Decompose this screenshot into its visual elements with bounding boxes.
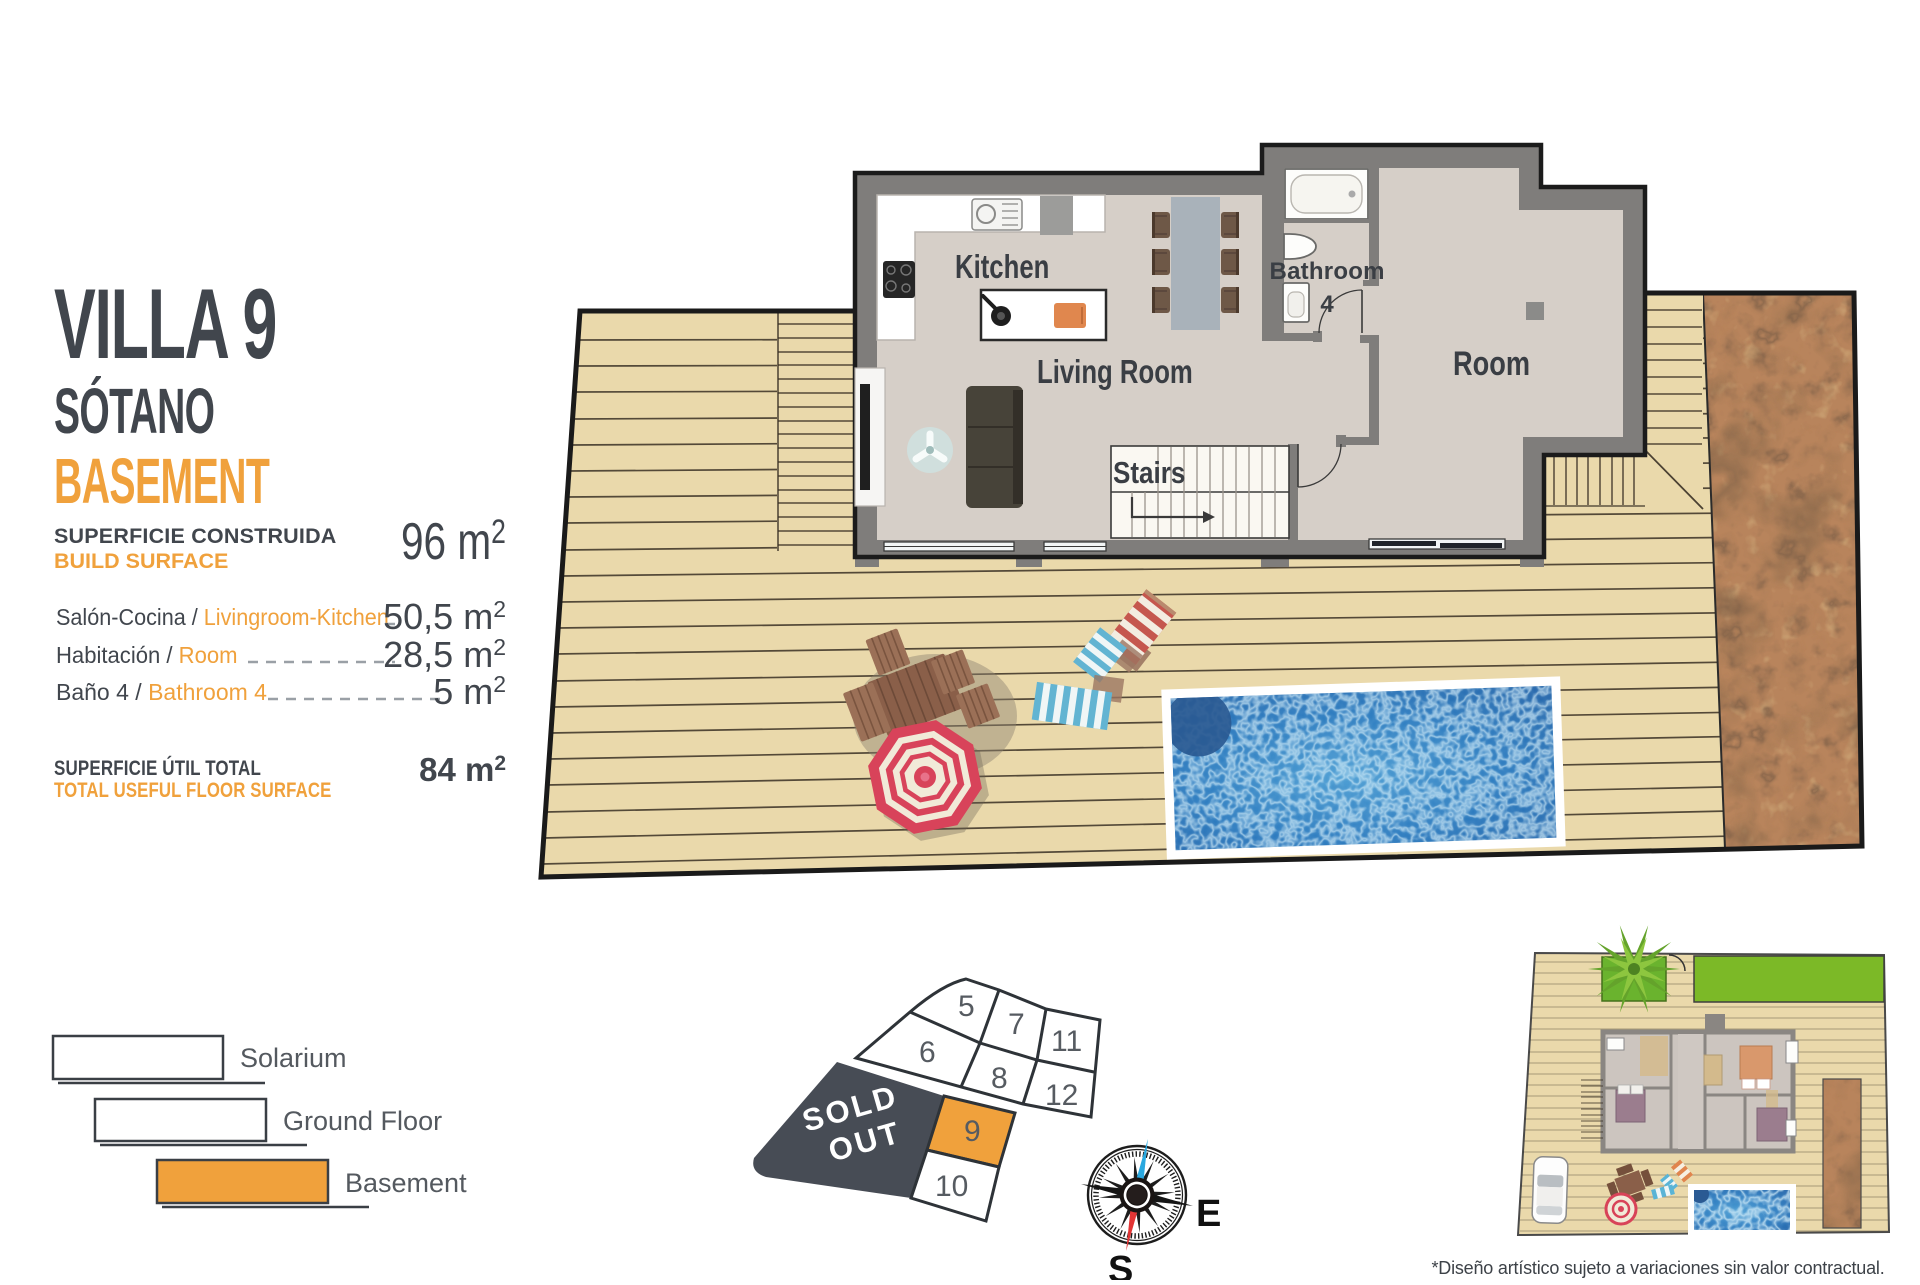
svg-text:12: 12 [1045,1079,1078,1112]
svg-text:SÓTANO: SÓTANO [54,375,214,447]
svg-text:7: 7 [1008,1008,1025,1041]
svg-text:5 m2: 5 m2 [433,671,506,712]
svg-text:SUPERFICIE CONSTRUIDA: SUPERFICIE CONSTRUIDA [54,524,337,548]
svg-text:Habitación / Room: Habitación / Room [56,643,238,669]
svg-text:Room: Room [1453,344,1530,383]
svg-text:E: E [1196,1193,1221,1235]
svg-text:Baño 4 / Bathroom 4: Baño 4 / Bathroom 4 [56,679,267,705]
svg-text:Kitchen: Kitchen [955,249,1049,286]
svg-text:Ground Floor: Ground Floor [283,1106,442,1136]
svg-text:BASEMENT: BASEMENT [54,446,270,517]
svg-text:50,5 m2: 50,5 m2 [383,596,506,637]
svg-text:VILLA 9: VILLA 9 [54,268,276,379]
svg-text:TOTAL USEFUL FLOOR SURFACE: TOTAL USEFUL FLOOR SURFACE [54,779,331,802]
svg-text:28,5 m2: 28,5 m2 [383,634,506,675]
svg-text:Bathroom: Bathroom [1270,258,1385,285]
svg-text:Salón-Cocina / Livingroom-Kitc: Salón-Cocina / Livingroom-Kitchen [56,604,389,630]
svg-text:S: S [1108,1249,1133,1280]
svg-text:9: 9 [964,1115,981,1148]
svg-text:4: 4 [1320,291,1334,318]
svg-text:10: 10 [935,1170,968,1203]
svg-text:Stairs: Stairs [1113,456,1185,491]
svg-text:Basement: Basement [345,1168,467,1198]
svg-text:*Diseño artístico sujeto a var: *Diseño artístico sujeto a variaciones s… [1431,1258,1884,1278]
svg-text:11: 11 [1051,1025,1082,1058]
svg-text:Solarium: Solarium [240,1043,347,1073]
svg-text:5: 5 [958,990,975,1023]
svg-text:8: 8 [991,1062,1008,1095]
svg-text:SUPERFICIE ÚTIL TOTAL: SUPERFICIE ÚTIL TOTAL [54,754,261,781]
svg-text:Living Room: Living Room [1037,354,1193,391]
svg-text:BUILD SURFACE: BUILD SURFACE [54,549,228,573]
svg-text:6: 6 [919,1036,936,1069]
svg-text:96 m2: 96 m2 [401,512,506,570]
svg-text:84 m2: 84 m2 [419,751,506,788]
